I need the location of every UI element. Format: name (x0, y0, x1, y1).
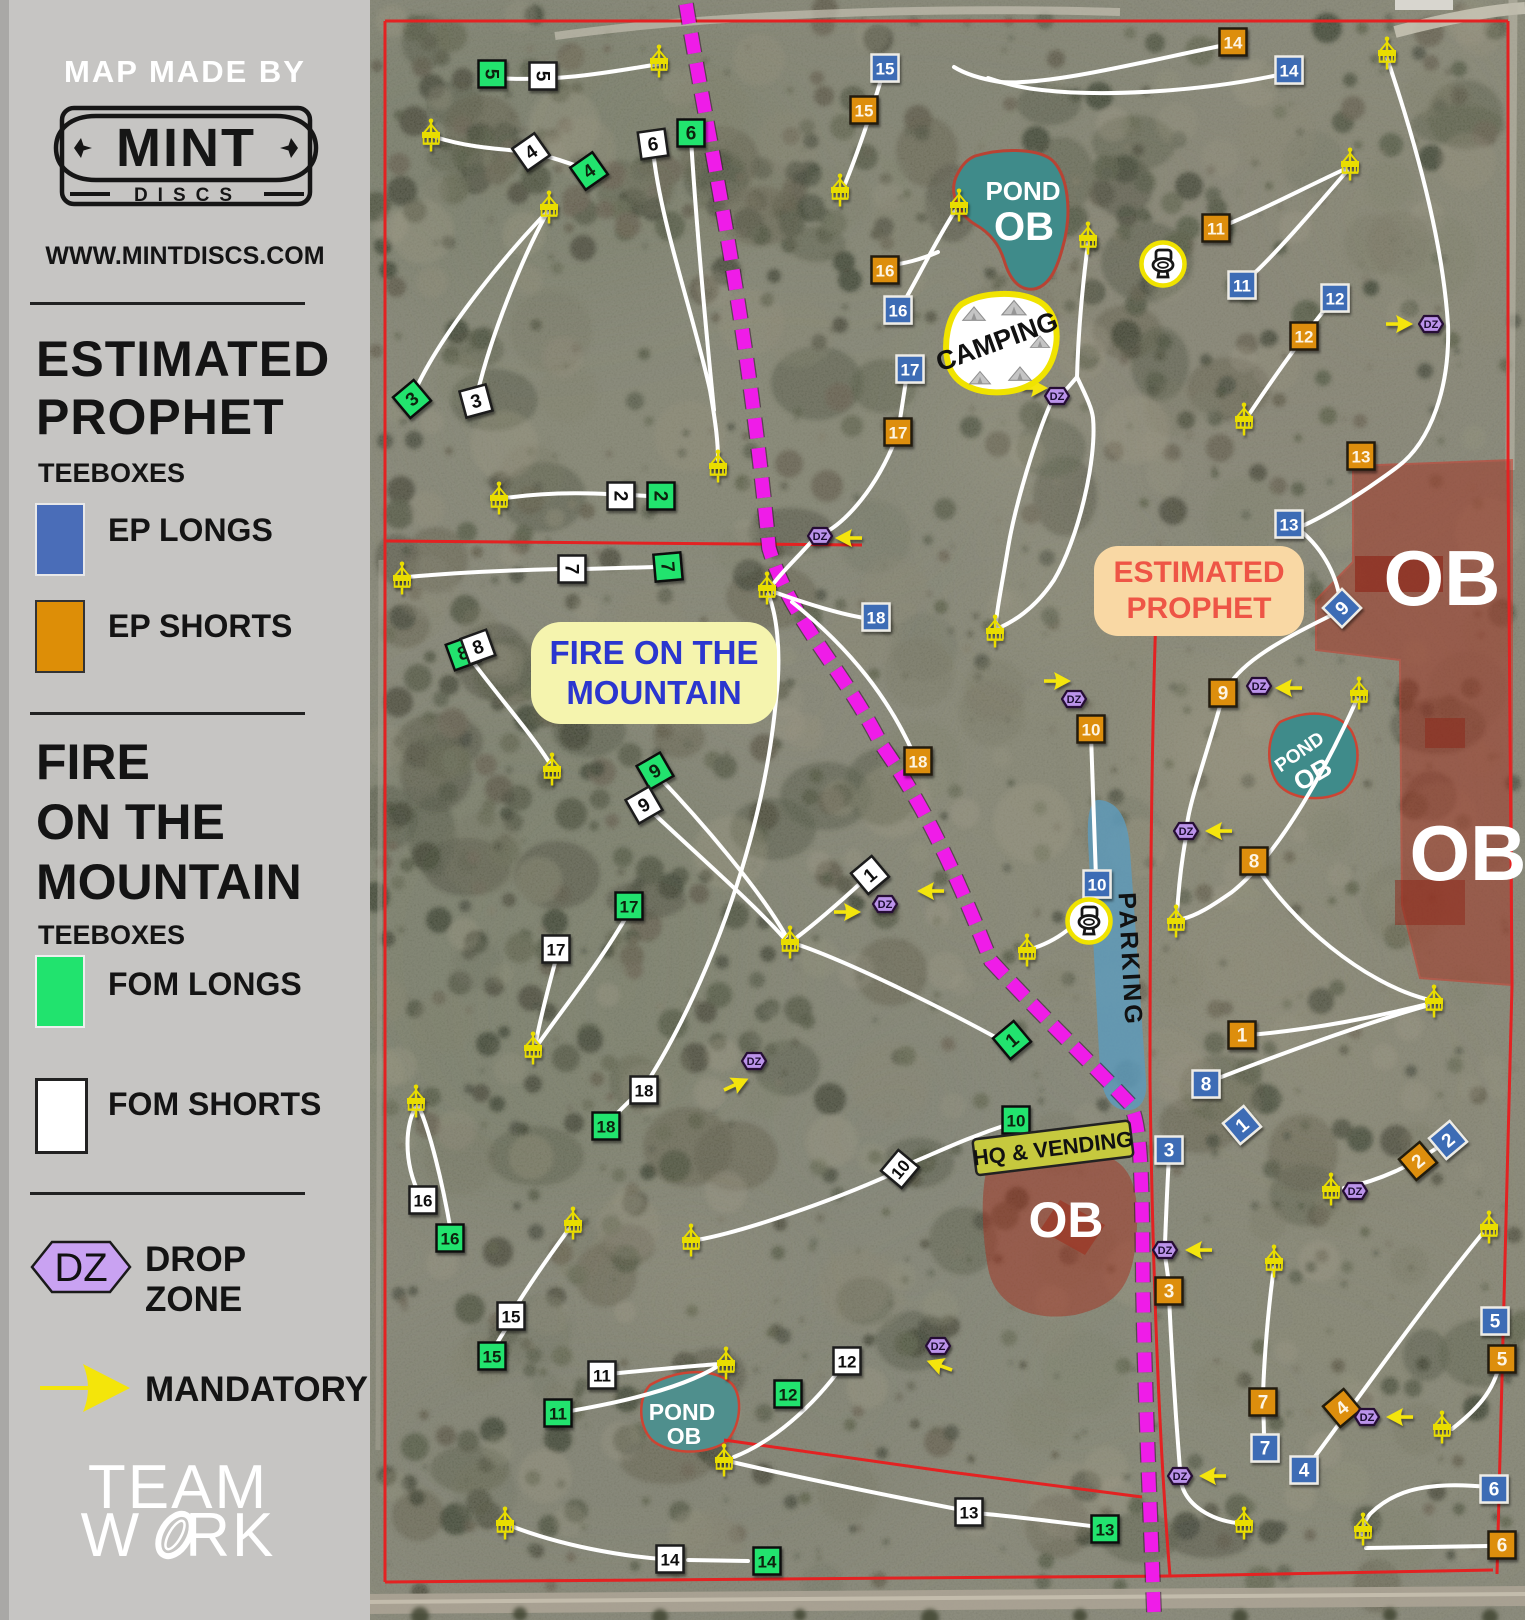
svg-text:POND: POND (649, 1399, 715, 1425)
svg-text:3: 3 (1164, 1282, 1175, 1303)
svg-text:16: 16 (414, 1192, 433, 1211)
svg-text:OB: OB (994, 205, 1054, 249)
svg-text:6: 6 (1497, 1536, 1508, 1557)
svg-text:14: 14 (1280, 62, 1299, 81)
svg-text:8: 8 (1249, 852, 1260, 873)
svg-text:12: 12 (838, 1353, 857, 1372)
svg-text:DZ: DZ (1252, 681, 1267, 693)
svg-text:ESTIMATED: ESTIMATED (1113, 556, 1284, 589)
svg-text:DZ: DZ (1360, 1412, 1375, 1424)
svg-text:7: 7 (656, 561, 678, 573)
svg-text:FIRE ON THE: FIRE ON THE (549, 634, 758, 671)
svg-text:11: 11 (1233, 277, 1251, 296)
svg-text:13: 13 (1352, 448, 1371, 467)
svg-text:1: 1 (1237, 1026, 1248, 1047)
svg-text:DISCS: DISCS (134, 185, 242, 206)
svg-text:7: 7 (1258, 1393, 1269, 1414)
svg-text:6: 6 (686, 124, 697, 145)
svg-text:16: 16 (876, 262, 895, 281)
svg-text:13: 13 (960, 1504, 979, 1523)
svg-text:MINT: MINT (116, 118, 256, 178)
svg-text:OB: OB (1029, 1192, 1104, 1248)
svg-text:DZ: DZ (1179, 826, 1194, 838)
svg-text:PROPHET: PROPHET (1126, 592, 1271, 625)
svg-text:DZ: DZ (813, 531, 828, 543)
svg-text:14: 14 (661, 1551, 680, 1570)
svg-text:11: 11 (1207, 220, 1225, 239)
svg-text:OB: OB (667, 1423, 702, 1449)
svg-text:18: 18 (909, 753, 928, 772)
svg-text:OB: OB (1384, 534, 1501, 622)
svg-text:18: 18 (867, 609, 886, 628)
svg-text:DZ: DZ (54, 1246, 107, 1290)
svg-text:17: 17 (547, 941, 566, 960)
svg-text:17: 17 (889, 424, 908, 443)
svg-text:7: 7 (561, 564, 582, 575)
svg-text:15: 15 (855, 102, 874, 121)
svg-text:7: 7 (1260, 1439, 1271, 1460)
svg-text:3: 3 (1164, 1141, 1175, 1162)
svg-text:OB: OB (1410, 809, 1525, 897)
svg-text:5: 5 (532, 71, 553, 82)
svg-text:10: 10 (1088, 876, 1107, 895)
svg-text:11: 11 (549, 1405, 567, 1424)
svg-text:14: 14 (1224, 34, 1243, 53)
svg-text:10: 10 (1007, 1112, 1026, 1131)
svg-text:12: 12 (1326, 290, 1345, 309)
svg-text:DZ: DZ (1067, 694, 1082, 706)
svg-text:15: 15 (483, 1348, 502, 1367)
svg-text:DZ: DZ (1173, 1471, 1188, 1483)
svg-text:18: 18 (597, 1118, 616, 1137)
svg-text:2: 2 (650, 491, 671, 502)
svg-text:5: 5 (1497, 1350, 1508, 1371)
svg-text:12: 12 (779, 1386, 798, 1405)
svg-text:DZ: DZ (1050, 391, 1065, 403)
svg-text:5: 5 (1490, 1312, 1501, 1333)
svg-text:9: 9 (1218, 684, 1229, 705)
svg-text:DZ: DZ (931, 1341, 946, 1353)
svg-text:15: 15 (876, 60, 895, 79)
svg-text:17: 17 (901, 361, 920, 380)
svg-text:6: 6 (1489, 1480, 1500, 1501)
svg-text:5: 5 (481, 69, 502, 80)
svg-text:14: 14 (758, 1553, 777, 1572)
svg-text:11: 11 (593, 1367, 611, 1386)
svg-text:DZ: DZ (1348, 1186, 1363, 1198)
svg-text:10: 10 (1082, 721, 1101, 740)
svg-text:15: 15 (502, 1308, 521, 1327)
svg-text:DZ: DZ (1424, 319, 1439, 331)
svg-text:16: 16 (889, 302, 908, 321)
svg-text:12: 12 (1295, 328, 1314, 347)
svg-text:8: 8 (1201, 1075, 1212, 1096)
svg-text:4: 4 (1299, 1461, 1310, 1482)
svg-text:DZ: DZ (878, 899, 893, 911)
svg-text:16: 16 (441, 1230, 460, 1249)
svg-text:17: 17 (620, 898, 639, 917)
svg-text:13: 13 (1280, 516, 1299, 535)
svg-text:DZ: DZ (1158, 1245, 1173, 1257)
svg-text:MOUNTAIN: MOUNTAIN (566, 674, 741, 711)
svg-text:2: 2 (610, 491, 631, 502)
svg-text:18: 18 (635, 1082, 654, 1101)
svg-text:13: 13 (1096, 1521, 1115, 1540)
svg-text:DZ: DZ (747, 1056, 762, 1068)
svg-text:POND: POND (985, 176, 1060, 206)
